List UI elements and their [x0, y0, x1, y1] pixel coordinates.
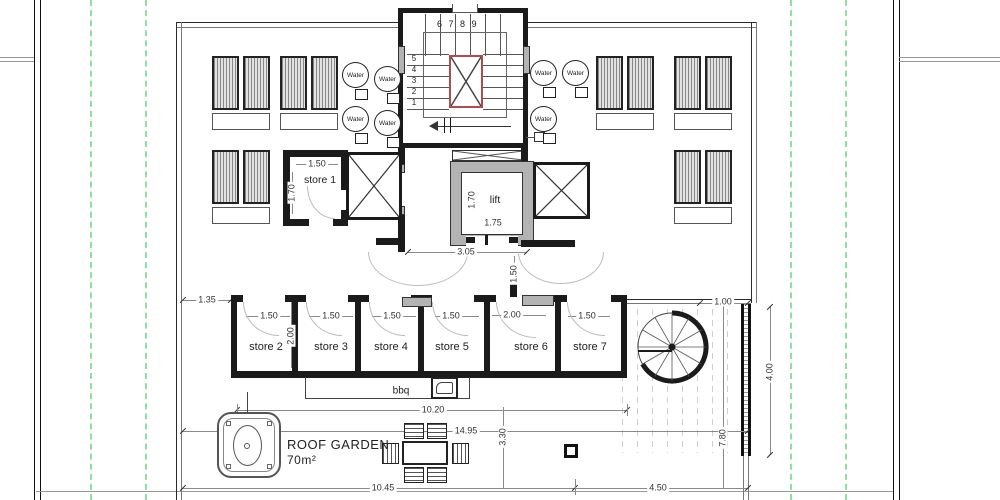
door-opening	[306, 295, 348, 302]
door-lintel	[402, 297, 432, 307]
walking-line-arrow	[429, 121, 438, 131]
store-wall	[621, 295, 627, 378]
wall-segment	[283, 150, 348, 157]
wall-segment	[376, 238, 405, 245]
dimension-label: 1.70	[288, 182, 297, 204]
dimension-label: 3.05	[455, 248, 477, 257]
chair-icon	[427, 423, 447, 439]
chair-icon	[427, 467, 447, 483]
dimension-label: 4.00	[766, 361, 775, 383]
chair-icon	[404, 467, 424, 483]
room-label-store7: store 7	[573, 341, 607, 353]
solar-panel	[627, 56, 654, 110]
solar-panel-base	[674, 113, 732, 130]
jacuzzi-leader-line	[247, 392, 248, 412]
dimension-label: 1.00	[712, 298, 734, 307]
water-tank-label: Water	[530, 106, 557, 132]
dimension-label: 1.50	[306, 160, 328, 169]
dimension-label: 3.30	[499, 426, 508, 448]
walking-line	[437, 126, 511, 127]
stair-step-number: 3	[409, 77, 419, 85]
solar-panel	[311, 56, 338, 110]
room-label-store4: store 4	[374, 341, 408, 353]
room-label-lift: lift	[490, 194, 501, 206]
door-opening	[243, 295, 285, 302]
store-wall	[484, 295, 490, 378]
store-wall	[355, 295, 361, 378]
extension-line	[627, 404, 628, 416]
water-tank-base	[355, 89, 368, 100]
room-label-store3: store 3	[314, 341, 348, 353]
door-opening	[567, 295, 611, 302]
extension-line	[575, 479, 576, 495]
dimension-label: 1.50	[381, 312, 403, 321]
solar-panel-group	[596, 56, 656, 130]
site-line	[36, 491, 893, 492]
solar-panel	[243, 150, 270, 204]
room-label-store6: store 6	[514, 341, 548, 353]
roof-garden-area-label: 70m²	[287, 453, 316, 467]
setback-line	[145, 0, 147, 500]
solar-panel-base	[212, 207, 270, 224]
setback-line	[90, 0, 92, 500]
service-shaft	[346, 152, 402, 220]
water-tank-base	[387, 137, 400, 148]
store-wall	[555, 295, 561, 378]
wall-segment	[521, 240, 575, 247]
water-tank-base	[355, 133, 368, 144]
dimension-label: 2.00	[501, 311, 523, 320]
water-tank: Water	[374, 110, 404, 148]
stair-run-numbers: 6 7 8 9	[437, 20, 479, 29]
roof-garden-label: ROOF GARDEN	[287, 437, 389, 452]
building-parapet	[176, 22, 398, 28]
dimension-label: 1.35	[196, 296, 218, 305]
lift-door-leaf	[466, 237, 475, 243]
plot-boundary-left	[34, 0, 41, 500]
dimension-label: 10.45	[370, 484, 397, 493]
street-edge	[0, 57, 34, 62]
dimension-tick	[767, 452, 773, 458]
dimension-label: 10.20	[420, 406, 447, 415]
stair-tower-notch	[452, 4, 478, 13]
dimension-label: 1.50	[320, 312, 342, 321]
dimension-label: 7.80	[719, 427, 728, 449]
building-parapet	[743, 455, 749, 500]
solar-panel-group	[212, 150, 272, 224]
stair-step-number: 2	[409, 88, 419, 96]
room-label-bbq: bbq	[393, 386, 410, 397]
solar-panel	[674, 150, 701, 204]
walking-line-tick	[444, 118, 445, 133]
door-arc	[307, 186, 335, 219]
service-shaft	[533, 162, 590, 219]
lift-door-leaf	[509, 237, 518, 243]
solar-panel	[705, 150, 732, 204]
lift-door-marker	[485, 235, 488, 245]
water-tank-label: Water	[374, 110, 401, 136]
door-opening	[432, 295, 474, 302]
solar-panel-group	[674, 56, 734, 130]
wall-fill	[523, 46, 530, 74]
solar-panel	[705, 56, 732, 110]
water-tank: Water	[562, 60, 592, 98]
water-tank-label: Water	[342, 106, 369, 132]
stair-step-number: 5	[409, 55, 419, 63]
dimension-line	[723, 303, 724, 488]
dimension-label: 1.70	[468, 189, 477, 211]
store-wall	[418, 295, 424, 378]
room-label-store1: store 1	[304, 174, 336, 186]
solar-panel-base	[674, 207, 732, 224]
wall-segment	[283, 219, 309, 226]
water-tank-base	[543, 87, 556, 98]
solar-panel	[280, 56, 307, 110]
water-tank-label: Water	[530, 60, 557, 86]
dining-table-icon	[402, 441, 448, 465]
plot-boundary-right	[893, 0, 900, 500]
solar-panel	[243, 56, 270, 110]
chair-icon	[452, 443, 469, 464]
stair-treads	[483, 54, 523, 111]
dimension-label: 1.75	[482, 219, 504, 228]
wall-segment	[333, 219, 348, 226]
stair-void	[449, 55, 483, 108]
street-edge	[899, 57, 1000, 62]
solar-panel	[212, 150, 239, 204]
walking-line-tick	[450, 118, 451, 133]
solar-panel-base	[280, 113, 338, 130]
water-tank-base	[575, 87, 588, 98]
store-wall	[231, 295, 237, 378]
door-arc	[368, 252, 468, 286]
water-tank: Water	[530, 60, 560, 98]
solar-panel-base	[212, 113, 270, 130]
building-parapet	[176, 22, 182, 500]
water-tank-base	[387, 93, 400, 104]
door-arc	[496, 302, 536, 338]
setback-line	[790, 0, 792, 500]
room-label-store5: store 5	[435, 341, 469, 353]
door-arc	[518, 252, 604, 284]
stair-step-number: 4	[409, 66, 419, 74]
dimension-label: 4.50	[647, 484, 669, 493]
solar-panel	[596, 56, 623, 110]
water-tank: Water	[374, 66, 404, 104]
bbq-grill-icon	[431, 377, 458, 399]
water-tank-base	[543, 133, 556, 144]
spiral-stair-icon	[634, 309, 710, 385]
dimension-label: 1.50	[576, 312, 598, 321]
machine-slab	[452, 150, 524, 161]
dimension-label: 14.95	[453, 427, 480, 436]
jacuzzi-icon	[217, 412, 281, 478]
water-tank-label: Water	[342, 62, 369, 88]
stair-step-number: 1	[409, 99, 419, 107]
column-marker	[564, 444, 578, 458]
solar-panel	[212, 56, 239, 110]
setback-line	[845, 0, 847, 500]
water-tank-label: Water	[374, 66, 401, 92]
dimension-label: 1.50	[258, 312, 280, 321]
water-tank-label: Water	[562, 60, 589, 86]
solar-panel-base	[596, 113, 654, 130]
dimension-label: 1.50	[440, 312, 462, 321]
solar-panel	[674, 56, 701, 110]
wall-segment	[341, 150, 348, 190]
solar-panel-group	[280, 56, 340, 130]
solar-panel-group	[212, 56, 272, 130]
water-tank: Water	[342, 106, 372, 144]
roof-floor-plan: Water Water Water Water Water Water Wate…	[0, 0, 1000, 500]
solar-panel-group	[674, 150, 734, 224]
room-label-store2: store 2	[249, 341, 283, 353]
building-parapet	[751, 22, 757, 303]
dimension-label: 2.00	[287, 325, 296, 347]
chair-icon	[404, 423, 424, 439]
water-tank: Water	[342, 62, 372, 100]
dimension-label: 1.50	[510, 263, 519, 285]
water-tank: Water	[530, 106, 560, 144]
building-parapet	[528, 22, 757, 28]
